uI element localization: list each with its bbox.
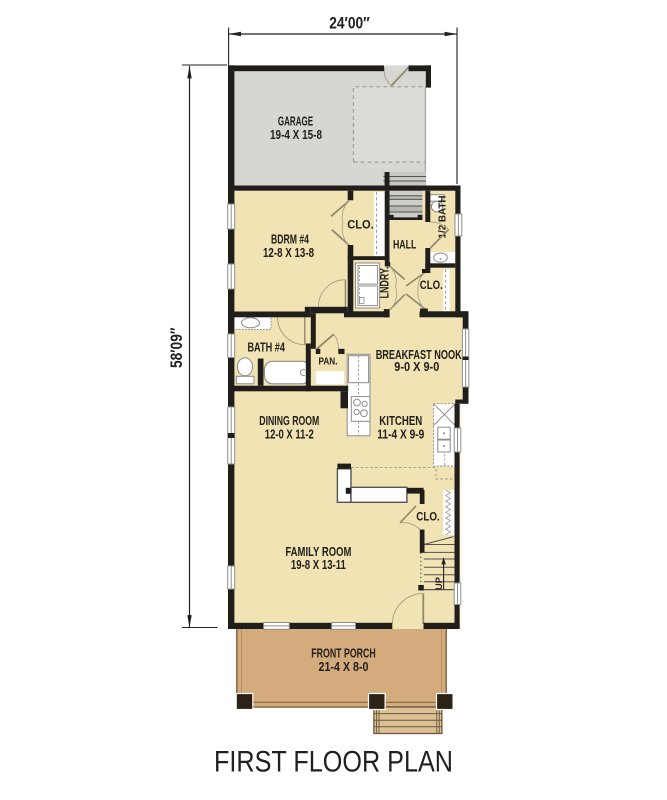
svg-text:9-0 X 9-0: 9-0 X 9-0 (394, 359, 439, 374)
svg-text:12-0 X 11-2: 12-0 X 11-2 (265, 426, 314, 441)
svg-text:LNDRY.: LNDRY. (379, 267, 391, 299)
svg-text:19-4 X 15-8: 19-4 X 15-8 (270, 127, 322, 142)
svg-text:HALL: HALL (393, 239, 417, 251)
svg-text:11-4 X 9-9: 11-4 X 9-9 (377, 426, 424, 441)
svg-text:12-8 X 13-8: 12-8 X 13-8 (263, 245, 314, 260)
svg-text:FIRST FLOOR PLAN: FIRST FLOOR PLAN (214, 746, 453, 779)
svg-text:CLO.: CLO. (347, 218, 374, 232)
svg-text:24′00″: 24′00″ (329, 15, 370, 33)
svg-text:21-4 X 8-0: 21-4 X 8-0 (319, 659, 369, 674)
svg-text:CLO.: CLO. (416, 510, 440, 524)
svg-text:19-8 X 13-11: 19-8 X 13-11 (291, 557, 346, 572)
svg-text:58′09″: 58′09″ (168, 327, 186, 368)
svg-text:PAN.: PAN. (319, 356, 338, 367)
svg-text:BATH #4: BATH #4 (247, 340, 285, 355)
svg-text:CLO.: CLO. (420, 278, 443, 292)
